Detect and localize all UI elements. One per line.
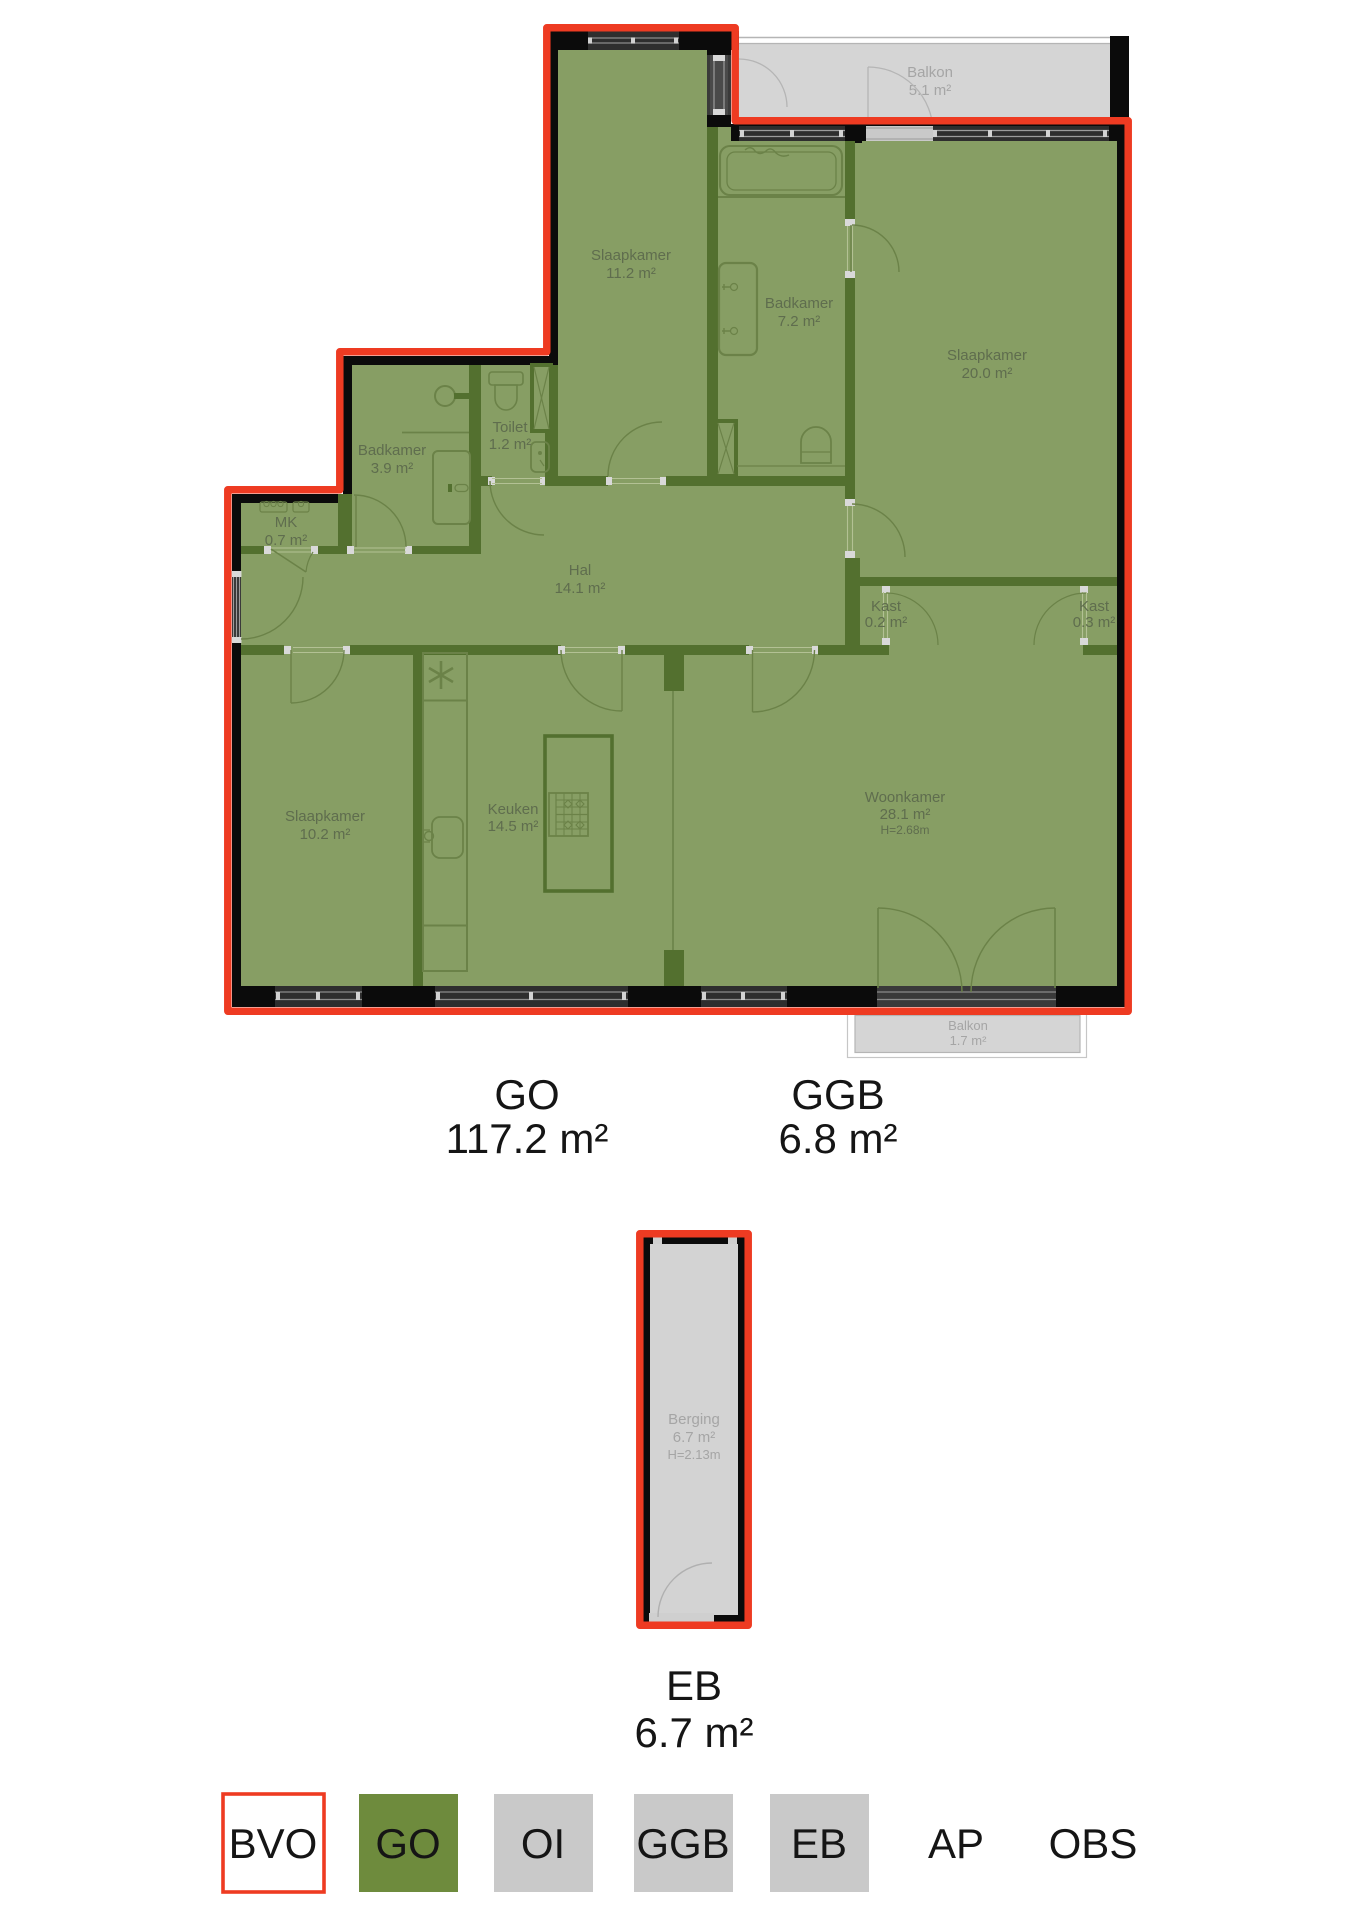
svg-text:EB: EB: [666, 1662, 722, 1709]
svg-text:Badkamer: Badkamer: [358, 442, 426, 459]
svg-text:0.3 m²: 0.3 m²: [1073, 614, 1116, 631]
svg-text:1.2 m²: 1.2 m²: [489, 436, 532, 453]
svg-text:GGB: GGB: [791, 1071, 884, 1118]
svg-text:11.2 m²: 11.2 m²: [606, 265, 656, 282]
svg-text:AP: AP: [928, 1820, 984, 1867]
svg-text:1.7 m²: 1.7 m²: [950, 1033, 988, 1048]
svg-text:0.2 m²: 0.2 m²: [865, 614, 908, 631]
svg-text:Slaapkamer: Slaapkamer: [947, 347, 1027, 364]
svg-text:20.0 m²: 20.0 m²: [962, 365, 1013, 382]
svg-text:Kast: Kast: [871, 598, 902, 615]
svg-text:6.8 m²: 6.8 m²: [778, 1115, 897, 1162]
svg-text:5.1 m²: 5.1 m²: [909, 82, 952, 99]
svg-text:6.7 m²: 6.7 m²: [673, 1429, 716, 1446]
svg-text:Slaapkamer: Slaapkamer: [591, 247, 671, 264]
svg-text:0.7 m²: 0.7 m²: [265, 532, 308, 549]
svg-text:Slaapkamer: Slaapkamer: [285, 808, 365, 825]
svg-text:Balkon: Balkon: [907, 64, 953, 81]
svg-text:14.1 m²: 14.1 m²: [555, 580, 606, 597]
svg-text:3.9 m²: 3.9 m²: [371, 460, 414, 477]
svg-text:Balkon: Balkon: [948, 1018, 988, 1033]
svg-text:Badkamer: Badkamer: [765, 295, 833, 312]
svg-text:28.1 m²: 28.1 m²: [880, 806, 931, 823]
svg-text:Kast: Kast: [1079, 598, 1110, 615]
svg-text:BVO: BVO: [229, 1820, 318, 1867]
svg-text:GGB: GGB: [636, 1820, 729, 1867]
svg-text:Keuken: Keuken: [488, 801, 539, 818]
svg-text:GO: GO: [375, 1820, 440, 1867]
svg-text:Woonkamer: Woonkamer: [865, 789, 946, 806]
svg-text:OBS: OBS: [1049, 1820, 1138, 1867]
svg-text:7.2 m²: 7.2 m²: [778, 313, 821, 330]
svg-text:EB: EB: [791, 1820, 847, 1867]
svg-text:H=2.13m: H=2.13m: [667, 1447, 720, 1462]
svg-text:GO: GO: [494, 1071, 559, 1118]
svg-text:OI: OI: [521, 1820, 565, 1867]
svg-text:117.2 m²: 117.2 m²: [446, 1115, 609, 1162]
svg-text:10.2 m²: 10.2 m²: [300, 826, 351, 843]
svg-text:Hal: Hal: [569, 562, 592, 579]
svg-text:Toilet: Toilet: [492, 419, 528, 436]
svg-text:MK: MK: [275, 514, 298, 531]
svg-text:Berging: Berging: [668, 1411, 720, 1428]
svg-text:H=2.68m: H=2.68m: [880, 823, 929, 837]
svg-text:6.7 m²: 6.7 m²: [634, 1709, 753, 1756]
svg-text:14.5 m²: 14.5 m²: [488, 818, 539, 835]
